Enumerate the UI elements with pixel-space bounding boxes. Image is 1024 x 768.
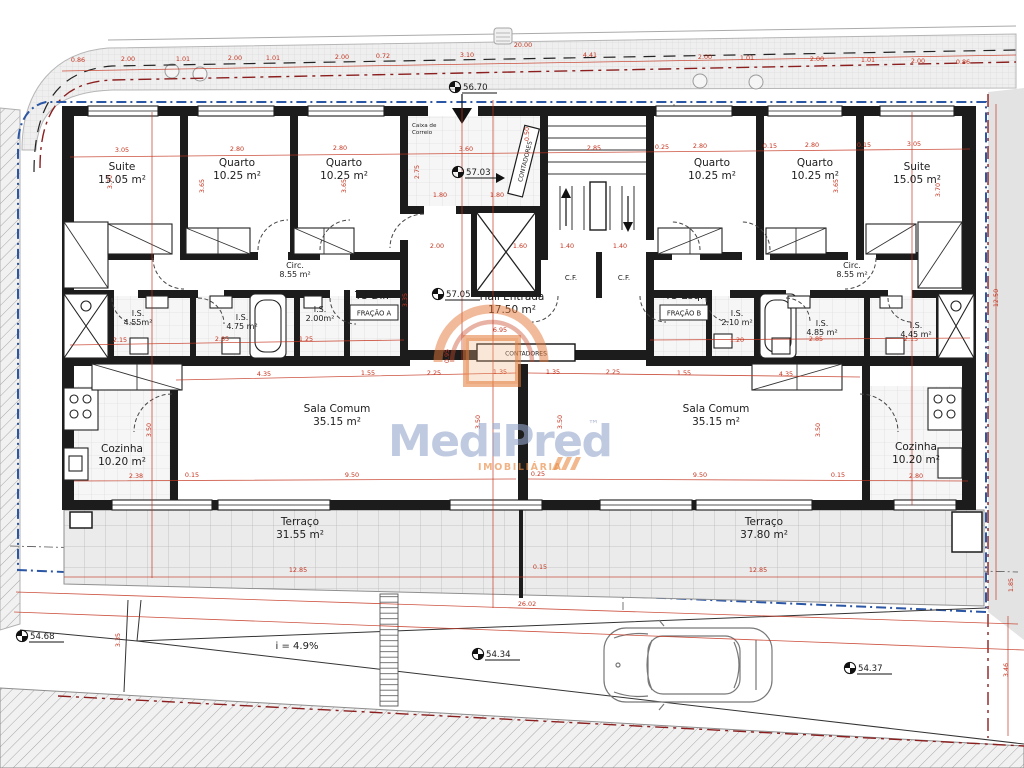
lobby-door-opening <box>424 206 456 214</box>
dim-label: 0.25 <box>655 143 669 151</box>
mailbox-label-line1: Caixa de <box>412 123 437 129</box>
dim-label: 12.85 <box>289 566 307 574</box>
terrace-floor <box>64 510 984 606</box>
dim-label: 0.15 <box>831 471 845 479</box>
dim-label: 2.15 <box>113 336 127 344</box>
sink <box>146 296 168 308</box>
dim-label: 1.80 <box>490 191 504 199</box>
stair-well <box>590 182 606 230</box>
dim-label: 2.80 <box>333 144 347 152</box>
room-label: Quarto10.25 m² <box>320 157 368 182</box>
room-label: Hall Entrada17.50 m² <box>480 291 545 316</box>
dim-label: 1.80 <box>433 191 447 199</box>
dim-label: 3.50 <box>814 423 822 437</box>
dim-label: 2.00 <box>228 54 242 62</box>
mailbox-label-line2: Correio <box>412 130 433 136</box>
dim-label: 3.50 <box>556 415 564 429</box>
dim-label: 2.00 <box>335 53 349 61</box>
dim-label: 1.55 <box>361 369 375 377</box>
dim-label: 9.50 <box>693 471 707 479</box>
dim-label: 0.95 <box>443 349 451 363</box>
dim-label: 2.85 <box>587 144 601 152</box>
benchmark-icon <box>432 288 443 299</box>
terraces <box>64 510 984 606</box>
entry-opening <box>428 106 478 116</box>
ramp-slope-label: i = 4.9% <box>276 641 319 652</box>
dim-label: 0.15 <box>533 563 547 571</box>
dim-label: 0.86 <box>956 58 970 66</box>
dim-label: 1.01 <box>266 54 280 62</box>
dim-label: 2.00 <box>698 53 712 61</box>
bottom-sidewalk-hatch <box>0 688 1024 768</box>
dim-label: 0.15 <box>763 142 777 150</box>
dim-label: 1.40 <box>560 242 574 250</box>
sink-kitchen-right <box>938 448 962 478</box>
toilet <box>772 338 790 354</box>
sink <box>210 296 232 308</box>
room-label: Quarto10.25 m² <box>213 157 261 182</box>
dim-label: 0.72 <box>376 52 390 60</box>
unit-right-fraction-label: FRAÇÃO B <box>667 309 702 318</box>
benchmark-label: 54.37 <box>858 664 883 674</box>
unit-left-fraction-label: FRAÇÃO A <box>357 309 392 318</box>
dim-label: 4.35 <box>779 370 793 378</box>
dim-label: 3.35 <box>401 293 409 307</box>
dim-label: 3.65 <box>198 179 206 193</box>
dim-label: 12.85 <box>749 566 767 574</box>
dim-label: 2.80 <box>693 142 707 150</box>
dim-label: 3.35 <box>114 633 122 647</box>
benchmark-icon <box>449 81 460 92</box>
bathtub-left-inner <box>255 300 281 352</box>
meters-box-label: CONTADORES <box>505 351 547 358</box>
dim-label: 3.05 <box>907 140 921 148</box>
hob-left <box>64 388 98 430</box>
unit-right-type-label: T3 Esq. <box>664 290 704 302</box>
manhole-icon <box>749 75 763 89</box>
exterior-stairs <box>380 594 398 706</box>
benchmark-icon <box>452 166 463 177</box>
terrace-notch <box>70 512 92 528</box>
hob-right <box>928 388 962 430</box>
room-label: Terraço31.55 m² <box>276 516 324 541</box>
dim-label: 2.25 <box>427 369 441 377</box>
dim-label: 2.25 <box>606 368 620 376</box>
dim-label: 2.00 <box>810 55 824 63</box>
benchmark-label: 54.68 <box>30 632 55 642</box>
dim-label: 1.85 <box>1007 578 1015 592</box>
toilet <box>886 338 904 354</box>
dim-label: 1.01 <box>176 55 190 63</box>
dim-label: 1.60 <box>513 242 527 250</box>
room-label: Cozinha10.20 m² <box>98 443 146 468</box>
room-label: Cozinha10.20 m² <box>892 441 940 466</box>
benchmark-icon <box>16 630 27 641</box>
benchmark-icon <box>844 662 855 673</box>
dim-label: 3.50 <box>145 423 153 437</box>
dim-label: 3.05 <box>115 146 129 154</box>
dim-label: 2.75 <box>413 165 421 179</box>
benchmark-label: 56.70 <box>463 83 488 93</box>
room-label: Quarto10.25 m² <box>688 157 736 182</box>
dim-label: 3.60 <box>459 145 473 153</box>
dim-label: 2.38 <box>129 472 143 480</box>
dim-label: 0.15 <box>857 141 871 149</box>
benchmark-icon <box>472 648 483 659</box>
dim-label: 26.02 <box>518 600 536 608</box>
dim-label: 1.35 <box>493 368 507 376</box>
benchmark-label: 57.03 <box>466 168 491 178</box>
closet-cf-right-label: C.F. <box>618 274 630 282</box>
dim-label: 0.50 <box>523 127 531 141</box>
dim-label: 1.01 <box>740 54 754 62</box>
terrace-divider-wall <box>519 510 523 598</box>
dim-label: 9.50 <box>345 471 359 479</box>
floorplan-page: CONTADORES CONTADORES C.F. C.F. <box>0 0 1024 768</box>
dim-label: 3.10 <box>460 51 474 59</box>
closet-cf-left-label: C.F. <box>565 274 577 282</box>
dim-label: 2.80 <box>805 141 819 149</box>
room-label: Quarto10.25 m² <box>791 157 839 182</box>
dim-label: 2.00 <box>911 57 925 65</box>
dim-label: 2.80 <box>230 145 244 153</box>
dim-label: 1.40 <box>613 242 627 250</box>
unit-left-type-label: T3 Dir. <box>354 290 389 302</box>
right-sidewalk <box>988 88 1024 640</box>
dim-label: 0.15 <box>185 471 199 479</box>
manhole-icon <box>165 64 179 78</box>
dim-label: 3.50 <box>474 415 482 429</box>
dim-label: 1.25 <box>299 335 313 343</box>
dim-label: 4.41 <box>583 51 597 59</box>
dim-label: 2.80 <box>909 472 923 480</box>
dim-label: 20.00 <box>514 41 532 49</box>
ramp-walls <box>124 600 141 692</box>
toilet <box>130 338 148 354</box>
dim-label: 0.86 <box>71 56 85 64</box>
manhole-icon <box>693 74 707 88</box>
benchmark-label: 57.05 <box>446 290 471 300</box>
floorplan-drawing: CONTADORES CONTADORES C.F. C.F. <box>0 0 1024 768</box>
terrace-notch <box>952 512 982 552</box>
dim-label: 12.50 <box>992 289 1000 307</box>
dim-label: 1.01 <box>861 56 875 64</box>
dim-label: 2.85 <box>215 335 229 343</box>
room-label: Terraço37.80 m² <box>740 516 788 541</box>
dim-label: 6.95 <box>493 326 507 334</box>
car-top-view <box>604 620 772 710</box>
room-label: Sala Comum35.15 m² <box>683 403 750 428</box>
dim-label: 3.46 <box>1002 663 1010 677</box>
dim-label: 1.55 <box>677 369 691 377</box>
dim-label: 1.35 <box>546 368 560 376</box>
room-label: Sala Comum35.15 m² <box>304 403 371 428</box>
storm-grate-icon <box>494 28 512 44</box>
dim-label: 4.35 <box>257 370 271 378</box>
benchmark-label: 54.34 <box>486 650 511 660</box>
dim-label: 2.00 <box>430 242 444 250</box>
dim-label: 2.00 <box>121 55 135 63</box>
sink <box>880 296 902 308</box>
dim-label: 0.25 <box>531 470 545 478</box>
dim-label: 1.20 <box>730 336 744 344</box>
